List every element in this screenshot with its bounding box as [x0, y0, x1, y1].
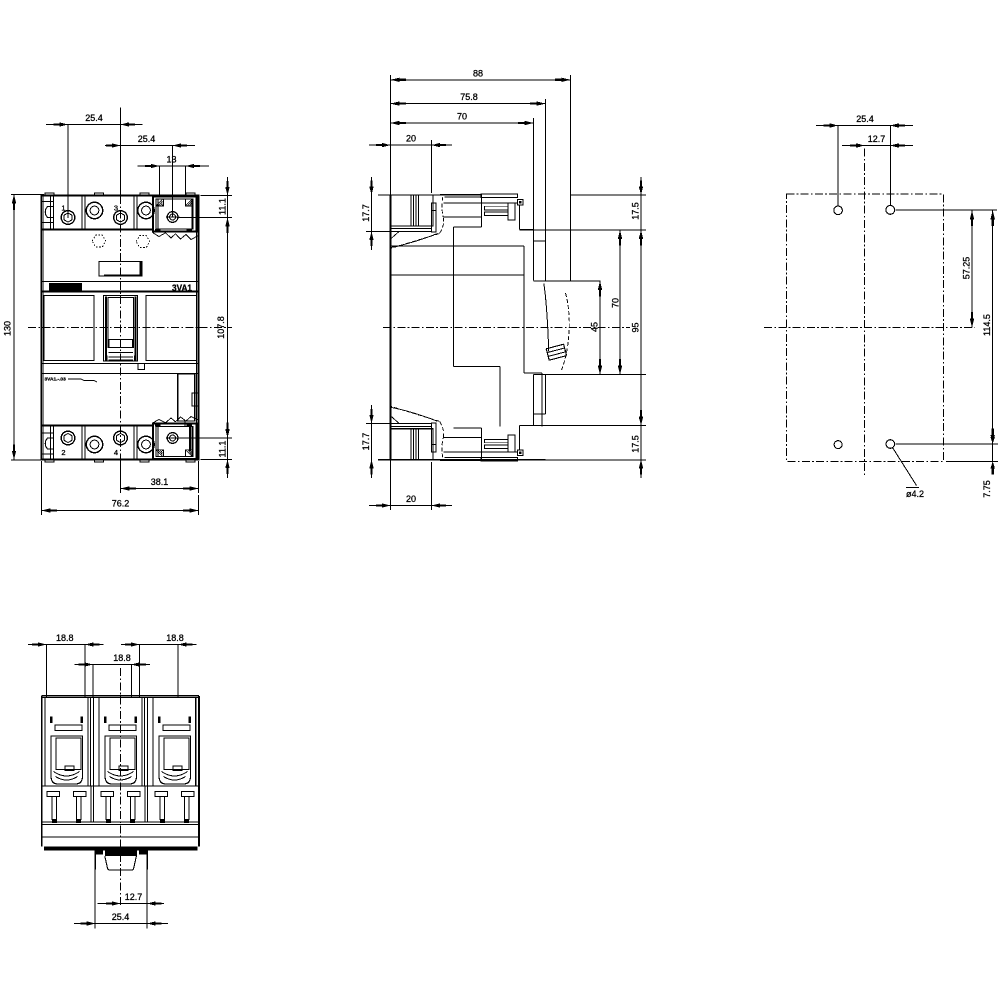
svg-text:1: 1 [61, 204, 65, 213]
svg-text:25.4: 25.4 [138, 134, 156, 144]
svg-text:88: 88 [473, 68, 483, 78]
svg-text:17.7: 17.7 [361, 433, 371, 451]
svg-text:20: 20 [406, 494, 416, 504]
svg-text:SIEMENS: SIEMENS [51, 285, 80, 291]
svg-text:130: 130 [3, 321, 13, 336]
svg-text:107.8: 107.8 [216, 316, 226, 339]
svg-text:3VA1: 3VA1 [172, 283, 192, 293]
svg-text:70: 70 [457, 112, 467, 122]
svg-text:76.2: 76.2 [112, 499, 130, 509]
svg-text:25.4: 25.4 [85, 113, 103, 123]
svg-text:7.75: 7.75 [982, 480, 992, 498]
svg-text:3: 3 [114, 204, 118, 213]
svg-text:13: 13 [166, 155, 176, 165]
svg-text:95: 95 [631, 322, 641, 332]
svg-text:18.8: 18.8 [56, 633, 74, 643]
svg-text:2: 2 [61, 448, 65, 457]
svg-text:11.1: 11.1 [218, 441, 228, 458]
svg-text:17.5: 17.5 [631, 435, 641, 453]
svg-text:12.7: 12.7 [868, 134, 886, 144]
svg-text:25.4: 25.4 [856, 114, 874, 124]
svg-text:70: 70 [611, 298, 621, 308]
svg-text:4: 4 [114, 448, 118, 457]
svg-text:11.1: 11.1 [218, 198, 228, 215]
svg-text:45: 45 [590, 322, 600, 332]
svg-text:75.8: 75.8 [460, 92, 478, 102]
svg-text:18.8: 18.8 [113, 653, 131, 663]
svg-text:17.7: 17.7 [361, 204, 371, 222]
svg-text:20: 20 [406, 134, 416, 144]
svg-text:25.4: 25.4 [112, 912, 130, 922]
svg-text:114.5: 114.5 [982, 314, 992, 336]
svg-text:ø4.2: ø4.2 [906, 489, 924, 499]
svg-text:18.8: 18.8 [166, 633, 184, 643]
svg-text:12.7: 12.7 [125, 892, 143, 902]
svg-text:3VA1.-.03: 3VA1.-.03 [45, 376, 67, 382]
svg-text:38.1: 38.1 [151, 477, 169, 487]
svg-text:57.25: 57.25 [962, 257, 972, 280]
svg-text:17.5: 17.5 [631, 202, 641, 220]
